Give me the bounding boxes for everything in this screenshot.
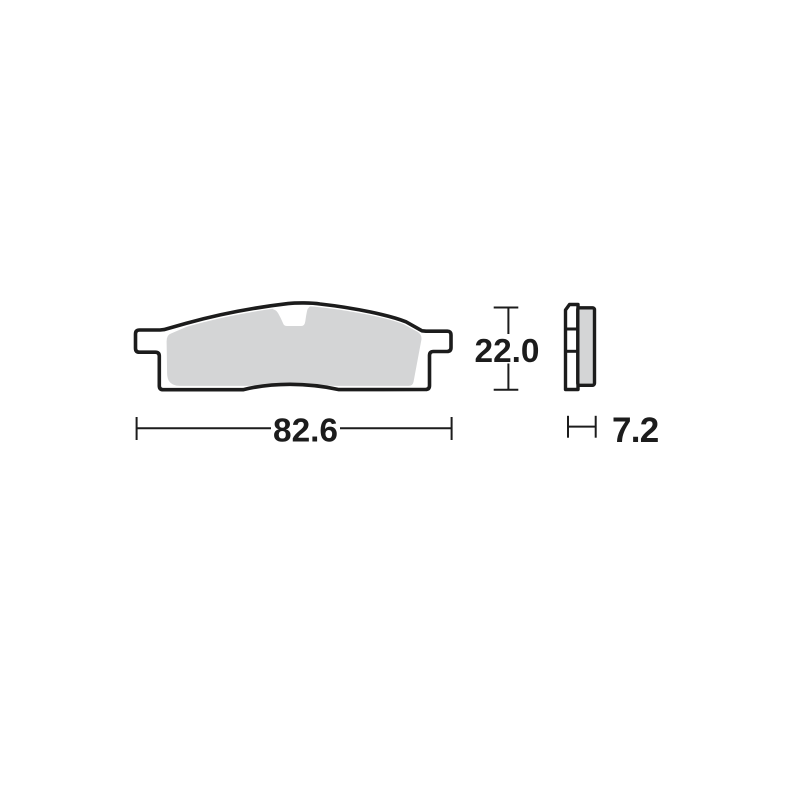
svg-text:7.2: 7.2 (612, 411, 659, 450)
svg-text:22.0: 22.0 (475, 333, 540, 370)
svg-text:82.6: 82.6 (273, 413, 338, 450)
